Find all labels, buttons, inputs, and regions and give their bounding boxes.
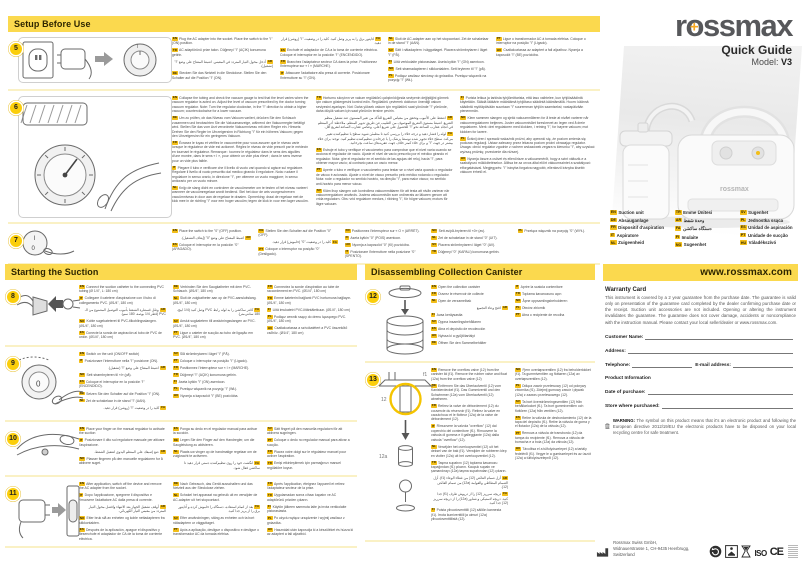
warranty-title: Warranty Card	[605, 287, 796, 293]
warranty-body: This instrument is covered by a 2 year g…	[605, 295, 796, 326]
instruction-step10-no: NOPlasser fingeren på den manuelle regul…	[79, 457, 166, 466]
instruction-step8-no: NOKoble sugekateteret til PVC-tilkobling…	[79, 319, 166, 328]
language-badge-tr: TR	[172, 48, 178, 52]
language-badge-ar: AR	[245, 236, 251, 240]
instruction-text: Hortumu sıkıştırın ve vakum regülatörü ç…	[316, 96, 449, 113]
instruction-text: Ponga su dedo en el regulador manual par…	[173, 427, 257, 435]
instruction-text: Placez votre doigt sur le régulateur man…	[267, 450, 346, 458]
instruction-step12-no: NOÅpne oppsamlingsbeholderen	[515, 299, 592, 303]
instruction-step10-ar: ARضع إصبعك على المنظم اليدوي لتفعيل الشف…	[79, 450, 166, 454]
instruction-text: کاتتر ساکشن را به لوله رابط PVC وصل کنید…	[177, 308, 260, 316]
instruction-step10-es: ESPonga su dedo en el regulador manual p…	[173, 427, 260, 436]
instruction-text: Käytön jälkeen sammuta laite ja irrota v…	[267, 505, 346, 513]
language-badge-pl: PL	[518, 229, 524, 233]
svg-text:12a: 12a	[379, 454, 388, 460]
language-badge-sv: SV	[267, 427, 273, 431]
language-badge-tr: TR	[267, 493, 273, 497]
instruction-step5-no: NOSett strømadapteren i stikkontakten. S…	[388, 67, 489, 71]
instruction-step8-sv: SVAnslut sugkatetern till anslutningssla…	[173, 319, 260, 328]
language-badge-ar: AR	[160, 366, 166, 370]
product-name-ar: ARوحدة شفط	[675, 218, 735, 224]
instruction-text: Uygulamadan sonra cihazı kapatın ve AC a…	[267, 493, 336, 501]
instruction-step12-it: ITAprire la scatola contenitore	[515, 285, 592, 289]
language-badge-fi: FI	[460, 96, 464, 100]
fill-in-line	[733, 362, 793, 368]
instruction-text: After application, switch off the device…	[79, 482, 162, 490]
language-badge-fi: FI	[173, 380, 177, 384]
instruction-text: Düğmeyi "0" (KAPALI) konumuna getirin.	[438, 250, 499, 254]
overflow-valve-removal-illustration: f11212a	[375, 368, 431, 528]
instruction-step11-de: DENach Gebrauch, das Gerät ausschalten u…	[173, 482, 260, 491]
language-badge-hu: HU	[460, 157, 466, 161]
instruction-step6-fi: FIPurista letkua ja tarkista tyhjiömitta…	[460, 96, 597, 114]
warranty-field-row: Date of purchase:	[605, 389, 796, 395]
section-setup-before-use: Setup Before Use 5IENPlug the AC adapter…	[8, 16, 600, 265]
language-badge-de: DE	[172, 116, 178, 120]
instruction-step6-en: ENCollapse the tubing and check the vacu…	[172, 96, 309, 114]
instruction-step13-pl: PLOdłącz zawór przelewowy (12) od pokryw…	[515, 384, 592, 397]
instruction-step8-es: ESConecte la sonda de aspiración al tubo…	[79, 331, 166, 340]
instruction-step8-de: DEVerbinden Sie den Saugkatheter mit dem…	[173, 285, 260, 294]
product-name-text: Váladékszívó	[749, 240, 777, 245]
warranty-card: Warranty Card This instrument is covered…	[603, 281, 798, 409]
language-badge-pl: PL	[515, 306, 521, 310]
language-badge-sv: SV	[173, 352, 179, 356]
warning-text: WARNING: The symbol on this product mean…	[613, 418, 796, 436]
instruction-step5-tr: TRAC adaptörünü prize takın. Düğmeyi "I"…	[172, 48, 273, 57]
product-name-text: Emme Ünitesi	[683, 210, 712, 215]
step-13-row: 13f11212aENRemove the overflow valve (12…	[365, 363, 595, 542]
language-badge-pt: PT	[496, 37, 502, 41]
instruction-step9-hu: HUNyomja a kapcsolót "I" (BE) pozícióba.	[173, 394, 260, 398]
instruction-step6-fa: FAلوله را فشار دهید و درجه خلاء را بررسی…	[316, 132, 453, 145]
instruction-text: اضبط المفتاح على وضع "0" (إيقاف التشغيل)…	[181, 236, 244, 240]
instruction-step11-it: ITDopo l'applicazione, spegnere il dispo…	[79, 493, 166, 502]
instruction-text: أدخل محول التيار المتردد في المقبس. اضبط…	[174, 60, 273, 68]
instruction-text: Poista ylivuotoventtiili (12) säiliön ka…	[431, 508, 501, 521]
language-badge-fr: FR	[173, 366, 179, 370]
instruction-text: Plasser fingeren på den manuelle regulat…	[79, 457, 163, 465]
instruction-text: Place your finger on the manual regulato…	[79, 427, 165, 435]
instruction-text: Coloque el interruptor en la posición "0…	[172, 243, 239, 251]
warranty-field-label: Product Information	[605, 376, 651, 381]
language-badge-no: NO	[460, 116, 466, 120]
instruction-step7-fi: FIAseta kytkin "0" (POIS) asentoon.	[345, 236, 424, 240]
instruction-step11-ar: ARأوقف تشغيل الجهاز بعد الانتهاء وافصل م…	[79, 505, 166, 514]
instruction-step12-en: ENOpen the collection canister	[431, 285, 508, 289]
quick-guide-page: ro+ssmax Quick Guide Model: V3 rossmax E…	[0, 0, 802, 564]
instruction-step11-fr: FRAprès l'application, éteignez l'appare…	[267, 482, 354, 491]
instruction-text: Positionnez l'interrupteur sur « O » (AR…	[352, 229, 420, 233]
unplug-ac-adapter-illustration	[15, 482, 79, 540]
instruction-text: Zet de schakelaar in de stand "I" (AAN).	[86, 399, 146, 403]
language-badge-pl: PL	[267, 315, 273, 319]
language-badge-ar: AR	[447, 116, 453, 120]
instruction-text: Ta bort överströmningsventilen (12) från…	[515, 400, 583, 413]
instruction-text: بعد از اتمام استفاده، دستگاه را خاموش کر…	[178, 505, 260, 513]
instruction-text: Távolítsa el a túlfolyószelepet (12) a t…	[515, 447, 591, 460]
instruction-text: Zet de schakelaar in de stand "0" (UIT).	[438, 236, 497, 240]
language-badge-es: ES	[515, 416, 521, 420]
language-badge-no: NO	[431, 229, 437, 233]
language-badge-nl: NL	[388, 37, 394, 41]
language-badge-fr: FR	[345, 229, 351, 233]
instruction-step7-de: DEStellen Sie den Schalter auf die Posit…	[258, 229, 337, 238]
footer: Rossmax Swiss GmbH, Widnauerstrasse 1, C…	[596, 540, 798, 558]
language-badge-pl: PL	[740, 218, 746, 223]
language-badge-fr: FR	[610, 225, 617, 230]
instruction-text: أزل صمام الفائض (12) من غطاء الوعاء (f1)…	[433, 476, 508, 489]
instruction-step9-es: ESColoque el interruptor en la posición …	[79, 380, 166, 389]
instruction-step6-no: NOKlem sammen slangen og sjekk vakuummål…	[460, 116, 597, 134]
instruction-text: Düğmeyi "I" (AÇIK) konumuna getirin.	[180, 373, 237, 377]
language-badge-tr: TR	[173, 373, 179, 377]
language-badge-fa: FA	[502, 492, 508, 496]
instruction-step8-ar: ARوصّل قسطرة الشفط بأنبوب التوصيل المصنو…	[79, 308, 166, 317]
logo-plus-icon: +	[690, 20, 699, 35]
instruction-step11-pl: PLPo użyciu wyłącz urządzenie i wyjmij z…	[267, 516, 354, 525]
step-6-figure: 6	[8, 96, 172, 218]
instruction-step7-hu: HUNyomja a kapcsolót "0" (KI) pozícióba.	[345, 243, 424, 247]
warranty-field-row: Customer Name:	[605, 334, 796, 340]
instruction-step12-hu: HUNyissa ki a gyűjtőtartályt	[431, 334, 508, 338]
instruction-step8-tr: TREmme kateterini bağlantı PVC hortumuna…	[267, 296, 354, 305]
instruction-text: Schakel het apparaat na gebruik uit en v…	[173, 493, 257, 501]
warranty-field-row: Product Information	[605, 376, 796, 381]
product-name-pl: PLJednostka ssąca	[740, 218, 800, 223]
warranty-field-label: Address:	[605, 349, 626, 354]
instruction-text: Nyissa ki a gyűjtőtartályt	[438, 334, 475, 338]
instruction-step10-nl: NLPlaats uw vinger op de handmatige rege…	[173, 450, 260, 459]
step-10-figure: 10	[5, 427, 79, 461]
instruction-step10-sv: SVSätt fingret på den manuella regulator…	[267, 427, 354, 436]
warranty-field-row: Telephone:E-mail address:	[605, 362, 796, 368]
catheter-connection-illustration	[15, 285, 79, 325]
instruction-step5-it: ITAttaccare l'adattatore alla presa di c…	[280, 71, 381, 80]
step-number-badge: 6	[10, 102, 22, 114]
instruction-text: Um zu prüfen, ob das Niveau vom Vakuum v…	[172, 116, 305, 138]
suction-unit-photo: rossmax	[608, 73, 800, 231]
instruction-step8-en: ENConnect the suction catheter to the co…	[79, 285, 166, 294]
instruction-step13-ar: ARأزل صمام الفائض (12) من غطاء الوعاء (f…	[431, 476, 508, 489]
instruction-step9-tr: TRDüğmeyi "I" (AÇIK) konumuna getirin.	[173, 373, 260, 377]
language-badge-tr: TR	[267, 296, 273, 300]
model-word: Model:	[751, 57, 778, 67]
step-6-instructions: ENCollapse the tubing and check the vacu…	[172, 96, 600, 218]
instruction-text: Ouvrez le réservoir de collecte	[438, 292, 484, 296]
language-badge-it: IT	[345, 250, 349, 254]
language-badge-pt: PT	[267, 438, 273, 442]
language-badge-fa: FA	[254, 461, 260, 465]
instruction-step12-pl: PLOtwórz zbiornik	[515, 306, 592, 310]
product-name-text: Suction unit	[618, 210, 643, 215]
instruction-text: Posizionare l'interruttore nella "I" pos…	[85, 359, 158, 363]
factory-icon	[596, 546, 609, 558]
instruction-text: لوله را فشار دهید و درجه خلاء را بررسی ک…	[318, 132, 453, 145]
instruction-step12-es: ESAbra el depósito de recolección	[431, 327, 508, 331]
instruction-step8-pt: PTLigue o cateter de sucção ao tubo de l…	[173, 331, 260, 340]
instruction-step11-no: NOEtter bruk slå av enheten og koble net…	[79, 516, 166, 525]
language-badge-fa: FA	[160, 406, 166, 410]
warranty-field-label: Store where purchased:	[605, 404, 660, 409]
instruction-step13-fa: FAدریچه سرریز (12) را از درپوش ظرف (f1) …	[431, 492, 508, 505]
instruction-step12-ar: ARافتح وعاء التجميع	[431, 306, 508, 310]
instruction-text: Slå strömbrytaren i läget "I" (PÅ).	[180, 352, 230, 356]
language-badge-en: EN	[172, 37, 178, 41]
product-name-fa: FAدستگاه ساکشن	[675, 226, 735, 232]
instruction-text: Setzen Sie den Schalter auf die Position…	[86, 392, 160, 396]
instruction-text: Efter användningen, stäng av enheten och…	[173, 516, 254, 524]
instruction-text: Coloque o interruptor na posição "I" (Li…	[180, 359, 248, 363]
instruction-text: Toplama kavanozunu açın	[522, 292, 561, 296]
instruction-text: Open the collection canister	[438, 285, 480, 289]
fill-in-line	[628, 348, 793, 354]
language-badge-pt: PT	[515, 431, 521, 435]
step-8-figure: 8	[5, 285, 79, 325]
product-name-nl: NLZuigeenheid	[610, 240, 670, 245]
translations-column-2: TREmme ÜnitesiARوحدة شفطFAدستگاه ساکشنFI…	[675, 210, 735, 250]
instruction-text: Abra el depósito de recolección	[438, 327, 485, 331]
step-7-figure: 7I0	[8, 229, 172, 259]
warranty-field-label: Customer Name:	[605, 335, 643, 340]
language-badge-sv: SV	[173, 516, 179, 520]
instruction-step9-nl: NLZet de schakelaar in de stand "I" (AAN…	[79, 399, 166, 403]
instruction-text: اضبط المفتاح على وضع "I" (تشغيل).	[108, 366, 159, 370]
language-badge-pt: PT	[173, 359, 179, 363]
instruction-text: Podłącz cewnik ssący do drenu łączącego …	[267, 315, 346, 323]
instruction-text: Ligue o cateter de sucção ao tubo de lig…	[173, 331, 253, 339]
instruction-step12-fr: FROuvrez le réservoir de collecte	[431, 292, 508, 296]
instruction-text: Aperte o tubo e verifique o vacuómetro p…	[316, 168, 453, 185]
fill-in-line	[632, 362, 692, 368]
language-badge-fi: FI	[675, 235, 680, 240]
product-name-pt: PTUnidade de sucção	[740, 233, 800, 238]
instruction-step6-nl: NLKnijp de slang dicht en controleer de …	[172, 186, 309, 204]
language-badge-sv: SV	[388, 48, 394, 52]
instruction-text: کلید را در وضعیت "0" (خاموش) قرار دهید.	[272, 240, 331, 244]
instruction-step13-pt: PTRemova a válvula de transbordo (12) da…	[515, 431, 592, 444]
language-badge-sv: SV	[173, 319, 179, 323]
instruction-step8-pl: PLPodłącz cewnik ssący do drenu łącząceg…	[267, 315, 354, 324]
section-title-starting: Starting the Suction	[5, 264, 357, 280]
instruction-text: Conecte la sonda de aspiración al tubo d…	[79, 331, 162, 339]
consult-manual-icon	[725, 545, 738, 558]
product-name-sv: SVSugenhet	[740, 210, 800, 215]
product-name-text: دستگاه ساکشن	[683, 226, 712, 231]
step-5-figure: 5I	[8, 37, 172, 83]
instruction-step13-no: NOFjern overløpsventilen (12) fra behold…	[515, 368, 592, 381]
language-badge-nl: NL	[173, 296, 179, 300]
instruction-text: Ściśnij dren i sprawdź wskaźnik próżni, …	[460, 137, 595, 154]
language-badge-de: DE	[173, 482, 179, 486]
instruction-text: Emişi etkinleştirmek için parmağınızı ma…	[267, 461, 341, 469]
language-badge-sv: SV	[431, 243, 437, 247]
fill-in-line	[648, 389, 793, 395]
language-badge-ar: AR	[160, 505, 166, 509]
instruction-text: Verbinden Sie den Saugkatheter mit dem P…	[173, 285, 251, 293]
instruction-text: Après l'application, éteignez l'appareil…	[267, 482, 345, 490]
svg-text:12: 12	[381, 397, 387, 403]
step-11-instructions: ENAfter application, switch off the devi…	[79, 482, 357, 542]
step-10-instructions: ENPlace your finger on the manual regula…	[79, 427, 357, 471]
language-badge-fr: FR	[280, 60, 286, 64]
instruction-step13-it: ITRimuovere la valvola "overflow" (12) d…	[431, 424, 508, 442]
logo-text-rest: ssmax	[703, 8, 792, 43]
instruction-step9-fi: FIAseta kytkin "I" (ON) asentoon.	[173, 380, 260, 384]
instruction-text: کلید را در وضعیت "I" (روشن) قرار دهید.	[103, 406, 159, 410]
warning-label: WARNING:	[613, 418, 635, 423]
language-badge-ar: AR	[502, 476, 508, 480]
regulatory-fine-print	[788, 545, 798, 558]
language-badge-de: DE	[258, 229, 264, 233]
step-9-figure: 90	[5, 352, 79, 412]
instruction-step9-de: DESetzen Sie den Schalter auf die Positi…	[79, 392, 166, 396]
instruction-text: Após a aplicação, desligue o dispositivo…	[173, 528, 259, 536]
translations-column-1: ENSuction unitDEAbsauganlageFRDispositif…	[610, 210, 670, 250]
product-name-text: Absauganlage	[618, 218, 648, 223]
instruction-step6-pl: PLŚciśnij dren i sprawdź wskaźnik próżni…	[460, 137, 597, 155]
instruction-text: Positionnez l'interrupteur sur « I » (MA…	[180, 366, 249, 370]
instruction-step9-no: NOSett strømbryteren til «I» (på).	[79, 373, 166, 377]
product-name-en: ENSuction unit	[610, 210, 670, 215]
language-badge-fa: FA	[375, 37, 381, 41]
instruction-step8-fa: FAکاتتر ساکشن را به لوله رابط PVC وصل کن…	[173, 308, 260, 317]
company-address: Widnauerstrasse 1, CH-9435 Heerbrugg, Sw…	[613, 546, 705, 558]
instruction-text: Rimuovere la valvola "overflow" (12) dal…	[431, 424, 499, 441]
language-badge-pt: PT	[173, 331, 179, 335]
instruction-text: Attaccare l'adattatore alla presa di cor…	[280, 71, 370, 79]
instruction-step12-nl: NLOpen de verzamelbak	[431, 299, 508, 303]
product-name-hu: HUVáladékszívó	[740, 240, 800, 245]
instruction-step5-pl: PLPodłącz zasilacz sieciowy do gniazdka.…	[388, 74, 489, 83]
language-badge-no: NO	[515, 299, 521, 303]
instruction-text: Aprire la scatola contenitore	[521, 285, 563, 289]
instruction-step7-es: ESColoque el interruptor en la posición …	[172, 243, 251, 252]
instruction-text: Avaa keräysastia	[437, 313, 463, 317]
instruction-step8-hu: HUCsatlakoztassa a szívókatétert a PVC ö…	[267, 326, 354, 335]
step-number-badge: 11	[7, 488, 19, 500]
step-13-instructions: ENRemove the overflow valve (12) from th…	[431, 368, 595, 536]
instruction-step5-hu: HUCsatlakoztassa az adaptert a fali aljz…	[496, 48, 597, 57]
language-badge-fa: FA	[254, 308, 260, 312]
step-5-row: 5IENPlug the AC adapter into the socket.…	[8, 32, 600, 91]
model-number: V3	[781, 57, 792, 67]
instruction-step8-it: ITCollegare il catetere d'aspirazione co…	[79, 296, 166, 305]
instruction-step6-it: ITPiegare il tubo e verificare che il li…	[172, 166, 309, 184]
instruction-step9-pt: PTColoque o interruptor na posição "I" (…	[173, 359, 260, 363]
language-badge-en: EN	[610, 210, 617, 215]
language-badge-pt: PT	[515, 313, 521, 317]
language-badge-fr: FR	[267, 450, 273, 454]
instruction-step7-en: ENPlace the switch to the "0" (OFF) posi…	[172, 229, 251, 233]
language-badge-en: EN	[172, 229, 178, 233]
instruction-text: Anslut sugkatetern till anslutningsslang…	[173, 319, 256, 327]
instruction-step6-fr: FRÉcrasez le tuyau et vérifiez le vacuom…	[172, 141, 309, 163]
language-badge-it: IT	[515, 285, 519, 289]
instruction-step7-it: ITPosizionare l'interruttore nella posiz…	[345, 250, 424, 259]
instruction-text: Przełącz włącznik na pozycję "I" (WŁ).	[180, 387, 237, 391]
instruction-step13-sv: SVTa bort överströmningsventilen (12) fr…	[515, 400, 592, 413]
instruction-text: Plug the AC adapter into the socket. Pla…	[172, 37, 272, 45]
product-name-text: وحدة شفط	[684, 218, 705, 223]
step-11-row: 11ENAfter application, switch off the de…	[5, 477, 357, 548]
instruction-step12-tr: TRToplama kavanozunu açın	[515, 292, 592, 296]
instruction-text: AC adaptörünü prize takın. Düğmeyi "I" (…	[172, 48, 266, 56]
switch-off-dial-illustration: I0	[18, 229, 172, 259]
language-badge-hu: HU	[515, 447, 521, 451]
step-12-instructions: ENOpen the collection canisterFROuvrez l…	[431, 285, 595, 351]
instruction-step13-es: ESRetire la válvula de desbordamiento (1…	[515, 416, 592, 429]
language-badge-fa: FA	[254, 505, 260, 509]
warranty-field-row: Address:	[605, 348, 796, 354]
instruction-text: Po użyciu wyłącz urządzenie i wyjmij zas…	[267, 516, 345, 524]
step-8-instructions: ENConnect the suction catheter to the co…	[79, 285, 357, 341]
instruction-text: Coloque o dedo no regulador manual para …	[267, 438, 350, 446]
instruction-step7-pt: PTColoque o interruptor na posição "0" (…	[258, 247, 337, 256]
svg-text:rossmax: rossmax	[720, 186, 749, 193]
product-name-fi: FIImulaite	[675, 235, 735, 240]
language-badge-nl: NL	[173, 493, 179, 497]
step-number-badge: 10	[7, 433, 19, 445]
open-canister-illustration	[375, 285, 431, 357]
instruction-text: Remova a válvula de transbordo (12) da t…	[515, 431, 584, 444]
language-badge-fi: FI	[267, 505, 271, 509]
instruction-step6-ar: ARاضغط على الأنبوب وتحقق من مقياس التفري…	[316, 116, 453, 129]
model-label: Model: V3	[608, 57, 802, 67]
instruction-step9-sv: SVSlå strömbrytaren i läget "I" (PÅ).	[173, 352, 260, 356]
warranty-field-label: Telephone:	[605, 363, 630, 368]
weee-bin-icon	[605, 418, 610, 434]
step-12-figure: 12	[365, 285, 431, 357]
instruction-text: Branchez l'adaptateur secteur CA dans la…	[280, 60, 377, 68]
instruction-text: Öffnen Sie den Sammelbehälter	[438, 341, 486, 345]
instruction-step5-nl: NLSluit de AC-adapter aan op het stopcon…	[388, 37, 489, 46]
language-badge-it: IT	[172, 166, 176, 170]
fill-in-line	[645, 334, 793, 340]
instruction-step7-no: NOSett av/på-bryteren til «0» (av).	[431, 229, 510, 233]
finger-on-manual-regulator-illustration	[15, 427, 79, 461]
instruction-text: Sätt fingret på den manuella regulatorn …	[267, 427, 342, 435]
product-name-tr: TREmme Ünitesi	[675, 210, 735, 215]
language-badge-pl: PL	[515, 384, 521, 388]
instruction-text: دریچه سرریز (12) را از درپوش ظرف (f1) جد…	[433, 492, 508, 505]
step-12-row: 12ENOpen the collection canisterFROuvrez…	[365, 280, 595, 363]
instruction-step13-fr: FRRetirez la valve de débordement (12) d…	[431, 404, 508, 422]
instruction-text: Stecken Sie das Netzteil in die Steckdos…	[172, 71, 266, 79]
language-badge-fr: FR	[267, 285, 273, 289]
instruction-text: Åpne oppsamlingsbeholderen	[522, 299, 567, 303]
instruction-text: Használat után kapcsolja ki a készüléket…	[267, 528, 353, 536]
language-badge-tr: TR	[316, 96, 322, 100]
instruction-text: Etter bruk slå av enheten og koble netta…	[79, 516, 165, 524]
language-badge-nl: NL	[431, 236, 437, 240]
translations-column-3: SVSugenhetPLJednostka ssącaESUnidad de a…	[740, 210, 800, 250]
instruction-step13-tr: TRTaşma supabını (12) toplama kavanozu k…	[431, 461, 508, 474]
language-badge-ar: AR	[502, 306, 508, 310]
warning-body: The symbol on this product means that it…	[613, 418, 796, 435]
language-badge-de: DE	[173, 285, 179, 289]
language-badge-hu: HU	[173, 394, 179, 398]
instruction-step7-tr: TRDüğmeyi "0" (KAPALI) konumuna getirin.	[431, 250, 510, 254]
instruction-text: آداپتور برق را به پریز وصل کنید. کلید را…	[281, 37, 381, 45]
instruction-text: Entfernen Sie das Überlaufventil (12) vo…	[431, 384, 501, 401]
instruction-text: Nyomja a kapcsolót "0" (KI) pozícióba.	[352, 243, 410, 247]
instruction-step6-hu: HUNyomja össze a csövet és ellenőrizze a…	[460, 157, 597, 175]
instruction-text: Sett av/på-bryteren til «0» (av).	[439, 229, 486, 233]
instruction-step8-nl: NLSluit de zuigkatheter aan op de PVC-aa…	[173, 296, 260, 305]
step-7-row: 7I0ENPlace the switch to the "0" (OFF) p…	[8, 224, 600, 265]
instruction-step5-fi: FILiitä verkkolaite pistorasiaan. Aseta …	[388, 60, 489, 64]
